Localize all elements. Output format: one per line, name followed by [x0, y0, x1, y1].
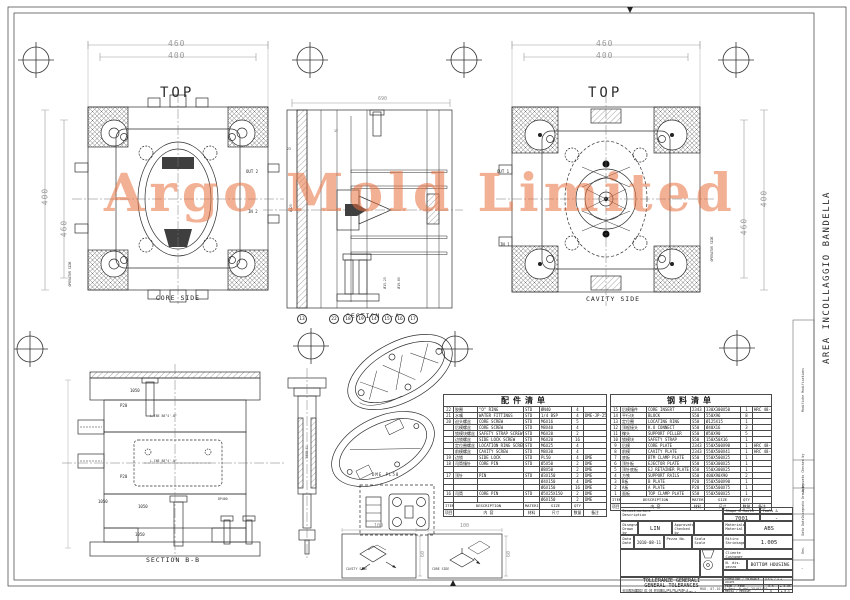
watermark-text: Argo Mold Limited: [104, 163, 737, 224]
parts-footer-desc: DESCRIPTION: [454, 503, 524, 510]
customer-label: Cliente Customer: [723, 549, 793, 559]
cell-remark: HRC 48-52: [753, 407, 772, 413]
scale-label: Scala Scale: [692, 535, 723, 549]
dim-cavity-top-inner: 400: [596, 51, 613, 60]
steel-footer-rk: [753, 497, 772, 504]
cell-name-cn: 定位圈螺丝: [454, 443, 478, 449]
steel-footer-item-cn: 项目: [611, 504, 621, 511]
date-label: Data Date: [620, 535, 634, 549]
parts-footer-size-cn: 尺寸: [540, 510, 572, 517]
cell-remark: DME-JP-252: [584, 413, 607, 419]
drawn-by-value: LIN: [638, 521, 672, 535]
runner-right-dim-w: 100: [460, 523, 469, 529]
section-b-caption: SECTION B-B: [138, 556, 208, 564]
steel-footer-size: SIZE: [705, 497, 741, 504]
dim-cavity-top-outer: 460: [596, 39, 613, 48]
spare-cell: [723, 570, 793, 577]
cell-remark: HRC 48-52: [753, 443, 772, 449]
description-cell: Denominazione Description: [620, 507, 723, 521]
balloon-callout: 17: [408, 314, 418, 324]
tools-mould-label: Tools & Mould No.: [760, 507, 793, 514]
cell-description: TOP CLAMP PLATE: [647, 491, 691, 497]
bb-plate-label-0: 1050: [130, 388, 140, 393]
balloon-callout: 22: [329, 314, 339, 324]
bb-line-note-2: L.INE 88°4'-0°: [150, 459, 177, 463]
section-a-dia-note-3: Ø15.25: [383, 272, 387, 294]
piece-no-label: Pezzo No.: [664, 535, 692, 549]
parts-footer-qty-cn: 数量: [572, 510, 584, 517]
parts-footer-item-cn: 项目: [444, 510, 454, 517]
steel-table-row: 5 顶针底板 EJ RETAINER PLATE S50 550X300X25 …: [611, 467, 772, 473]
approved-by-label: Approvato Checked by: [672, 521, 694, 535]
cell-description: EJ RETAINER PLATE: [647, 467, 691, 473]
tolerances-note-en: ACCOUPLEMENTS H7-h6 ACCORDING TO UNI EN …: [623, 592, 721, 593]
date-value: 2010-08-11: [634, 535, 664, 549]
part-no-value: BOTTOM HOUSING: [747, 559, 793, 570]
balloon-callout: 19: [356, 314, 366, 324]
section-a-dia-note-2: Ø19.05: [397, 272, 401, 294]
dim-core-left-inner: 460: [60, 219, 69, 239]
steel-table-title: 钢料清单: [611, 395, 772, 407]
balloon-callout: 13: [297, 314, 307, 324]
tol-value: ± 0.1: [779, 590, 792, 593]
core-view-title: TOP: [160, 85, 194, 101]
bb-plate-label-3: 1050: [98, 499, 108, 504]
drawing-sheet: { "watermark": {"text": "Argo Mold Limit…: [0, 0, 850, 600]
steel-footer-mat: MATERIAL: [691, 497, 705, 504]
runner-right-caption: CORE SIDE: [432, 567, 449, 571]
bb-plate-label-5: 1050: [135, 532, 145, 537]
cell-description: LOCATION RING SCREW: [478, 443, 524, 449]
dim-cavity-right-inner: 460: [740, 217, 749, 237]
tools-mould-value: -: [760, 514, 793, 521]
notes-box: [620, 549, 700, 577]
parts-footer-mat-cn: 材料: [524, 510, 540, 517]
runner-right-dim-h: 60: [506, 548, 512, 560]
runner-left-dim-w: 100: [374, 523, 383, 529]
latch-detail-caption: DME PL50: [372, 472, 399, 477]
rev-label-date: Data Date: [801, 513, 805, 541]
drawn-by-label: Disegnato Drawn by: [620, 521, 638, 535]
cell-description: BTM CLAMP PLATE: [647, 455, 691, 461]
bb-line-note-1: L.INE 88°4'-0°: [150, 414, 177, 418]
parts-footer-rk: [584, 503, 607, 510]
material-value: ABS: [745, 521, 793, 535]
core-view-caption: CORE SIDE: [148, 294, 208, 302]
cell-name-cn: 锁模块螺丝: [454, 431, 478, 437]
dim-core-top-inner: 400: [168, 51, 185, 60]
parts-footer-mat: MATERIAL: [524, 503, 540, 510]
approved-by-value: [694, 521, 723, 535]
balloon-callout: 15: [382, 314, 392, 324]
shrinkage-label: Ritiro Shrinkage: [723, 535, 745, 549]
parts-footer-qty: QTY: [572, 503, 584, 510]
cavity-view-title: TOP: [588, 85, 622, 101]
steel-table-row: 12 顶棍接头 K.O CONNECT S50 Ø40X16 3: [611, 425, 772, 431]
bb-plate-label-4: 1050: [138, 504, 148, 509]
rev-label-modifications: Modifiche Modifications: [801, 367, 805, 413]
parts-footer-rk-cn: 备注: [584, 510, 607, 517]
shape-mould-value: 7001: [723, 514, 760, 521]
latch-detail-drawing: [360, 485, 434, 535]
cavity-view-caption: CAVITY SIDE: [578, 295, 648, 303]
title-block-footer: MOD. 07.10.15 Rev. 0 del 25/01/10: [700, 587, 767, 591]
parts-table-title: 配件清单: [444, 395, 607, 407]
steel-table: 钢料清单 15 后模镶件 CORE INSERT 2343 330X300X50…: [610, 394, 772, 511]
steel-table-row: 15 后模镶件 CORE INSERT 2343 330X300X50 1 HR…: [611, 407, 772, 413]
bb-bore-note: DP400: [218, 497, 228, 501]
projection-symbol-box: [700, 549, 723, 577]
bb-plate-label-2: P20: [120, 474, 127, 479]
parts-footer-desc-cn: 内 容: [454, 510, 524, 517]
steel-footer-desc: DESCRIPTION: [621, 497, 691, 504]
steel-footer-item: ITEM: [611, 497, 621, 504]
dim-cavity-right-outer: 400: [760, 189, 769, 209]
parts-table: 配件清单 22 胶圈 "O" RING STD ØN40 4 21 水嘴 WAT…: [443, 394, 607, 517]
shrinkage-value: 1.005: [745, 535, 793, 549]
runner-left-dim-h: 60: [420, 548, 426, 560]
dim-core-left-outer: 400: [41, 187, 50, 207]
iso-part-bottom-drawing: [320, 396, 447, 502]
shape-mould-label: Shape & Mould No.: [723, 507, 760, 514]
steel-footer-qty: QTY: [741, 497, 753, 504]
runner-left-caption: CAVITY SIDE: [346, 567, 367, 571]
sheet-side-note: AREA INCOLLAGGIO BANDELLA: [822, 224, 832, 364]
balloon-callout: 16: [395, 314, 405, 324]
part-no-label: N. dis. pezzo Part drw. No.: [723, 559, 747, 570]
bb-plate-label-1: P20: [120, 403, 127, 408]
parts-footer-item: ITEM: [444, 503, 454, 510]
cell-description: SAFETY STRAP SCREW: [478, 431, 524, 437]
section-a-dim-note-2: 17: [334, 129, 338, 133]
cavity-operator-side-label: OPERATOR SIDE: [710, 229, 714, 269]
core-operator-side-label: OPERATOR SIDE: [68, 254, 72, 294]
balloon-callout: 14: [369, 314, 379, 324]
material-label: Materiale Material: [723, 521, 745, 535]
dim-section-a-width: 690: [378, 96, 387, 102]
rev-label-rev: Rev.: [801, 540, 805, 560]
cavity-in-label: IN 1: [500, 242, 510, 247]
dim-core-top-outer: 460: [168, 39, 185, 48]
rev-value: -: [801, 566, 803, 571]
parts-footer-size: SIZE: [540, 503, 572, 510]
cell-remark: HRC 48-52: [753, 449, 772, 455]
sprue-detail-label: 5050-GL: [305, 437, 309, 467]
balloon-callout: 18: [343, 314, 353, 324]
section-a-dim-note-1: 23: [287, 147, 291, 151]
